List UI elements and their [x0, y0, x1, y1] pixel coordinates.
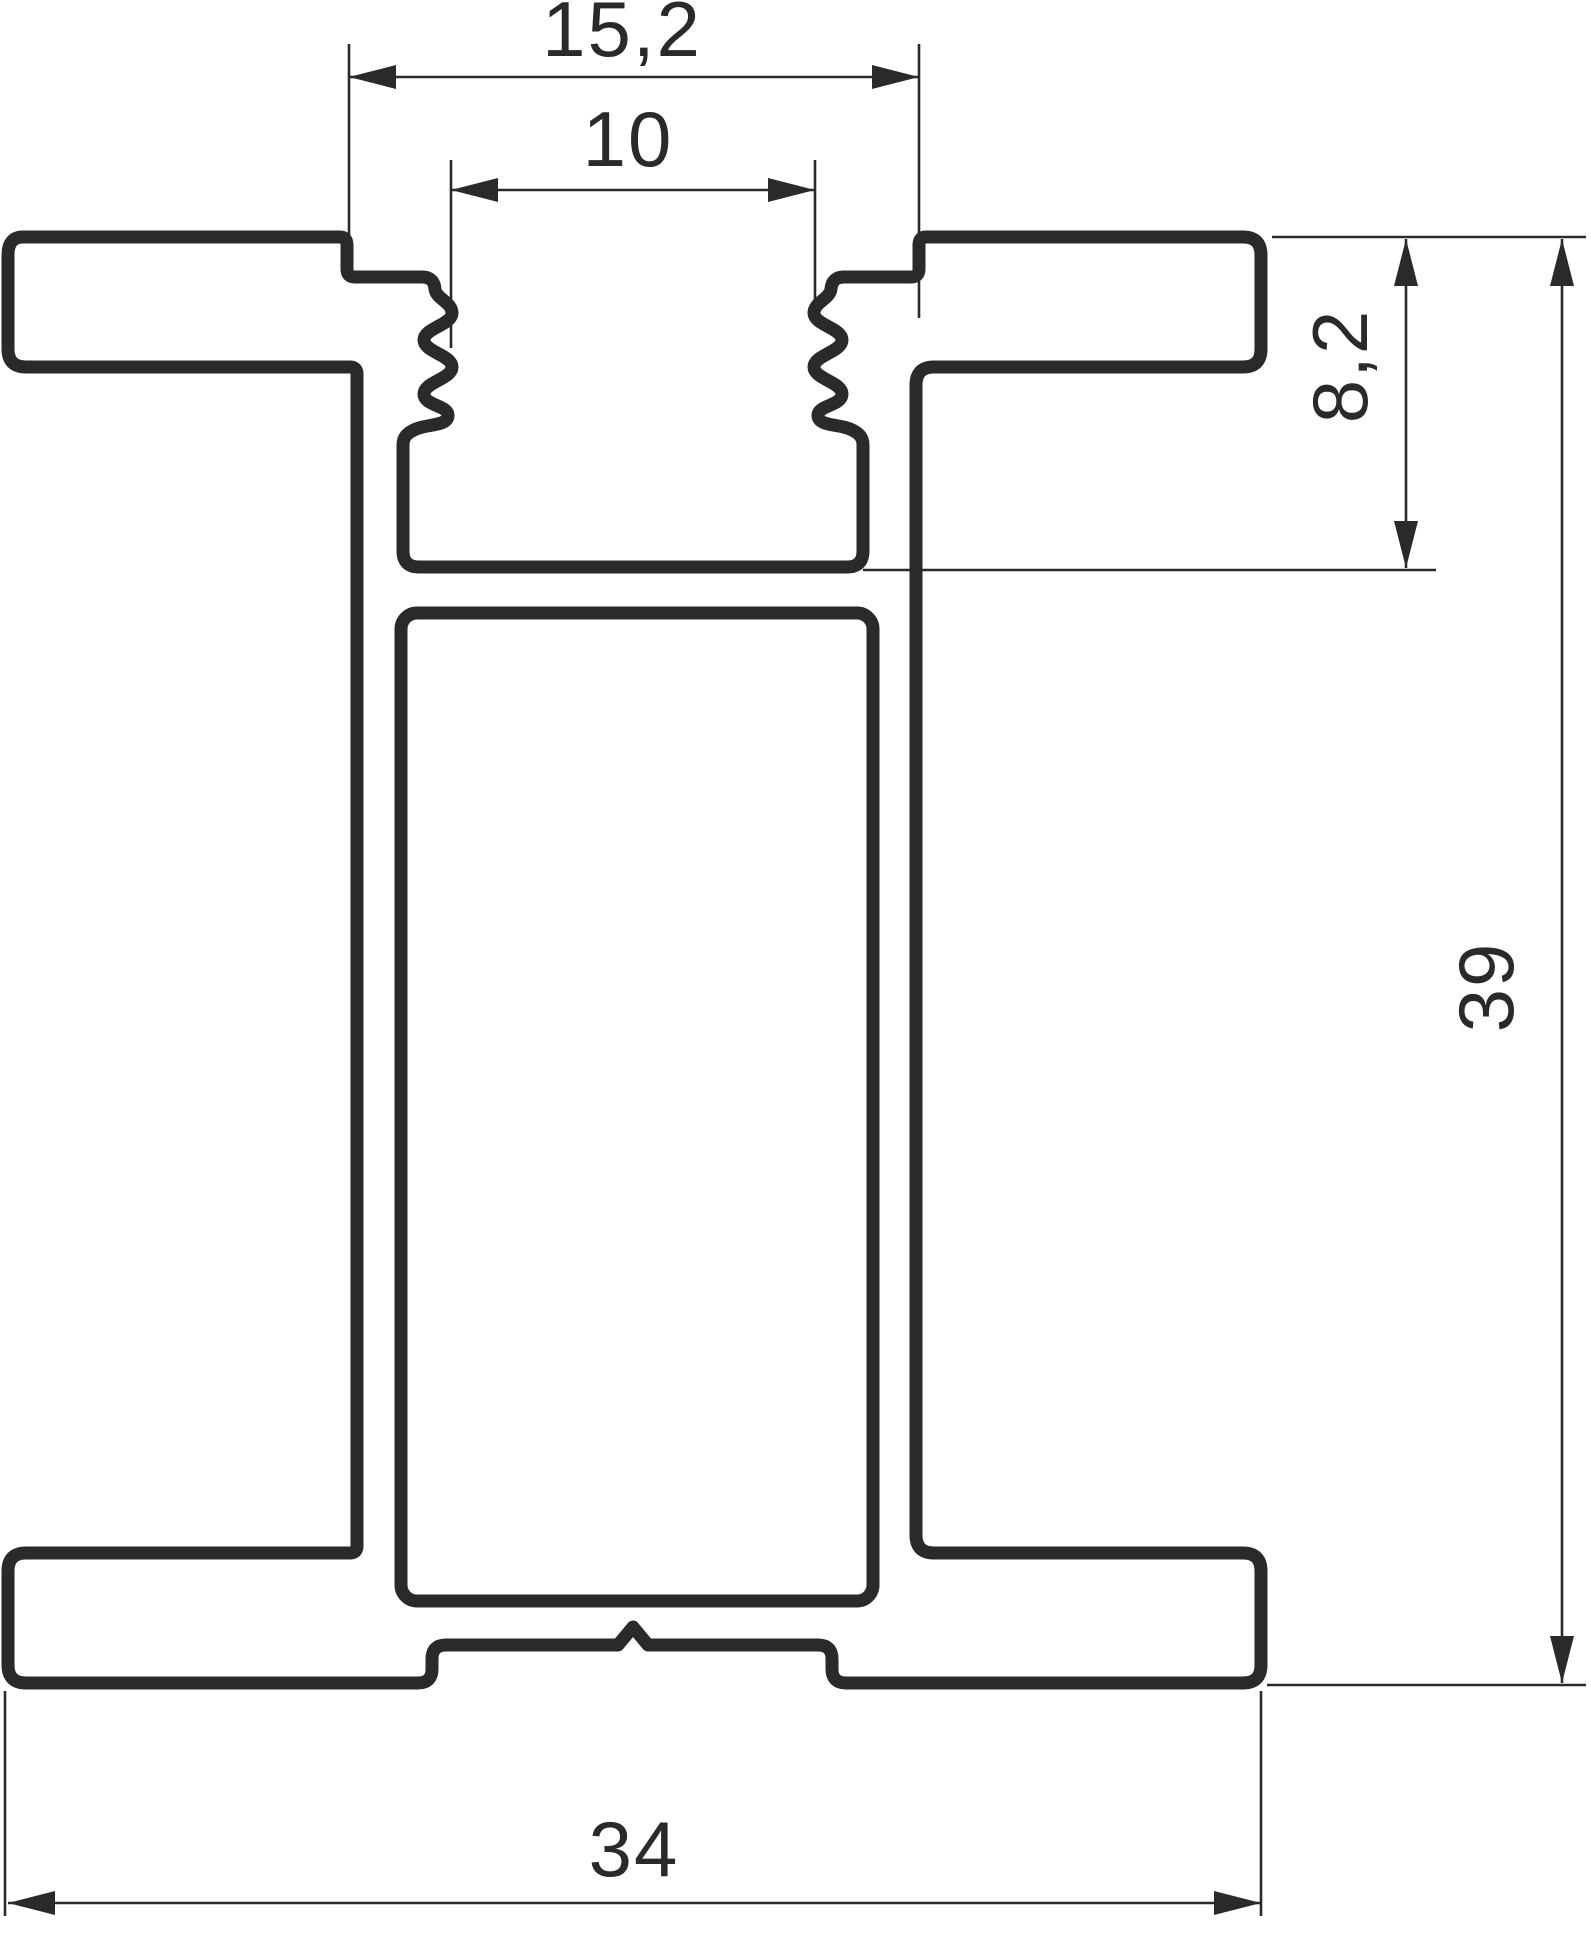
arrowhead-left-icon: [349, 65, 396, 89]
drawing-svg: 15,2 10 8,2 39: [0, 0, 1591, 1934]
dimension-label: 34: [589, 1805, 680, 1893]
dimension-channel-width: 10: [451, 95, 815, 348]
arrowhead-up-icon: [1394, 239, 1418, 286]
dimension-label: 15,2: [542, 0, 702, 73]
dimension-channel-depth: 8,2: [863, 239, 1436, 570]
arrowhead-down-icon: [1394, 521, 1418, 568]
arrowhead-up-icon: [1550, 239, 1574, 286]
arrowhead-left-icon: [451, 178, 498, 202]
profile-outer-outline: [8, 237, 1261, 1683]
arrowhead-left-icon: [8, 1891, 55, 1915]
arrowhead-right-icon: [872, 65, 919, 89]
arrowhead-right-icon: [768, 178, 815, 202]
arrowhead-down-icon: [1550, 1636, 1574, 1683]
dimension-total-height: 39: [1267, 239, 1586, 1685]
dimension-label: 10: [583, 95, 674, 183]
profile-outline-group: [8, 237, 1261, 1683]
arrowhead-right-icon: [1214, 1891, 1261, 1915]
dimension-label: 8,2: [1296, 309, 1384, 423]
profile-inner-cavity: [401, 613, 873, 1601]
dimension-total-width: 34: [5, 1691, 1261, 1916]
dimension-label: 39: [1442, 942, 1530, 1033]
technical-drawing-canvas: 15,2 10 8,2 39: [0, 0, 1591, 1934]
